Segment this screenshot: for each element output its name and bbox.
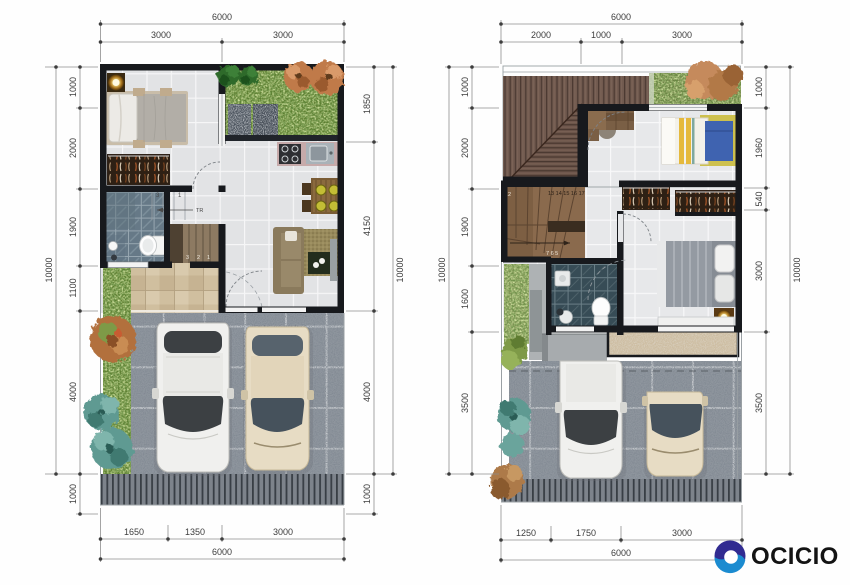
svg-text:1350: 1350 (185, 527, 205, 537)
svg-text:1960: 1960 (754, 138, 764, 158)
svg-text:2000: 2000 (460, 138, 470, 158)
svg-text:6000: 6000 (212, 547, 232, 557)
svg-text:1100: 1100 (68, 278, 78, 297)
svg-text:1900: 1900 (68, 217, 78, 237)
svg-text:1000: 1000 (591, 30, 611, 40)
svg-text:4150: 4150 (362, 216, 372, 236)
svg-text:1250: 1250 (516, 528, 536, 538)
svg-text:3000: 3000 (672, 30, 692, 40)
svg-text:1000: 1000 (754, 77, 764, 97)
svg-text:10000: 10000 (395, 257, 405, 282)
svg-text:4000: 4000 (68, 382, 78, 402)
svg-text:1000: 1000 (68, 484, 78, 504)
svg-text:1000: 1000 (68, 77, 78, 97)
svg-text:10000: 10000 (437, 257, 447, 282)
svg-text:6000: 6000 (611, 548, 631, 558)
svg-text:1600: 1600 (460, 289, 470, 309)
svg-text:TR: TR (196, 208, 203, 214)
svg-text:1650: 1650 (124, 527, 144, 537)
svg-text:4000: 4000 (362, 382, 372, 402)
svg-text:3000: 3000 (273, 527, 293, 537)
svg-text:3000: 3000 (754, 261, 764, 281)
svg-text:1900: 1900 (460, 217, 470, 237)
svg-text:3500: 3500 (460, 393, 470, 413)
svg-text:1750: 1750 (576, 528, 596, 538)
svg-text:6000: 6000 (611, 12, 631, 22)
svg-text:6000: 6000 (212, 12, 232, 22)
svg-text:3000: 3000 (672, 528, 692, 538)
svg-text:540: 540 (754, 191, 764, 206)
svg-text:2000: 2000 (68, 138, 78, 158)
svg-text:1000: 1000 (460, 77, 470, 97)
svg-text:7 6 5: 7 6 5 (546, 251, 558, 257)
svg-text:10000: 10000 (792, 257, 802, 282)
svg-text:3000: 3000 (273, 30, 293, 40)
svg-text:1: 1 (207, 255, 210, 261)
svg-text:1000: 1000 (362, 484, 372, 504)
svg-text:2000: 2000 (531, 30, 551, 40)
svg-text:2: 2 (197, 255, 200, 261)
svg-text:10000: 10000 (44, 257, 54, 282)
svg-text:3500: 3500 (754, 393, 764, 413)
svg-text:1850: 1850 (362, 94, 372, 114)
svg-text:OCICIO: OCICIO (751, 543, 839, 570)
svg-text:3000: 3000 (151, 30, 171, 40)
svg-text:3: 3 (186, 255, 189, 261)
svg-text:13 14 15 16 17: 13 14 15 16 17 (548, 191, 585, 197)
